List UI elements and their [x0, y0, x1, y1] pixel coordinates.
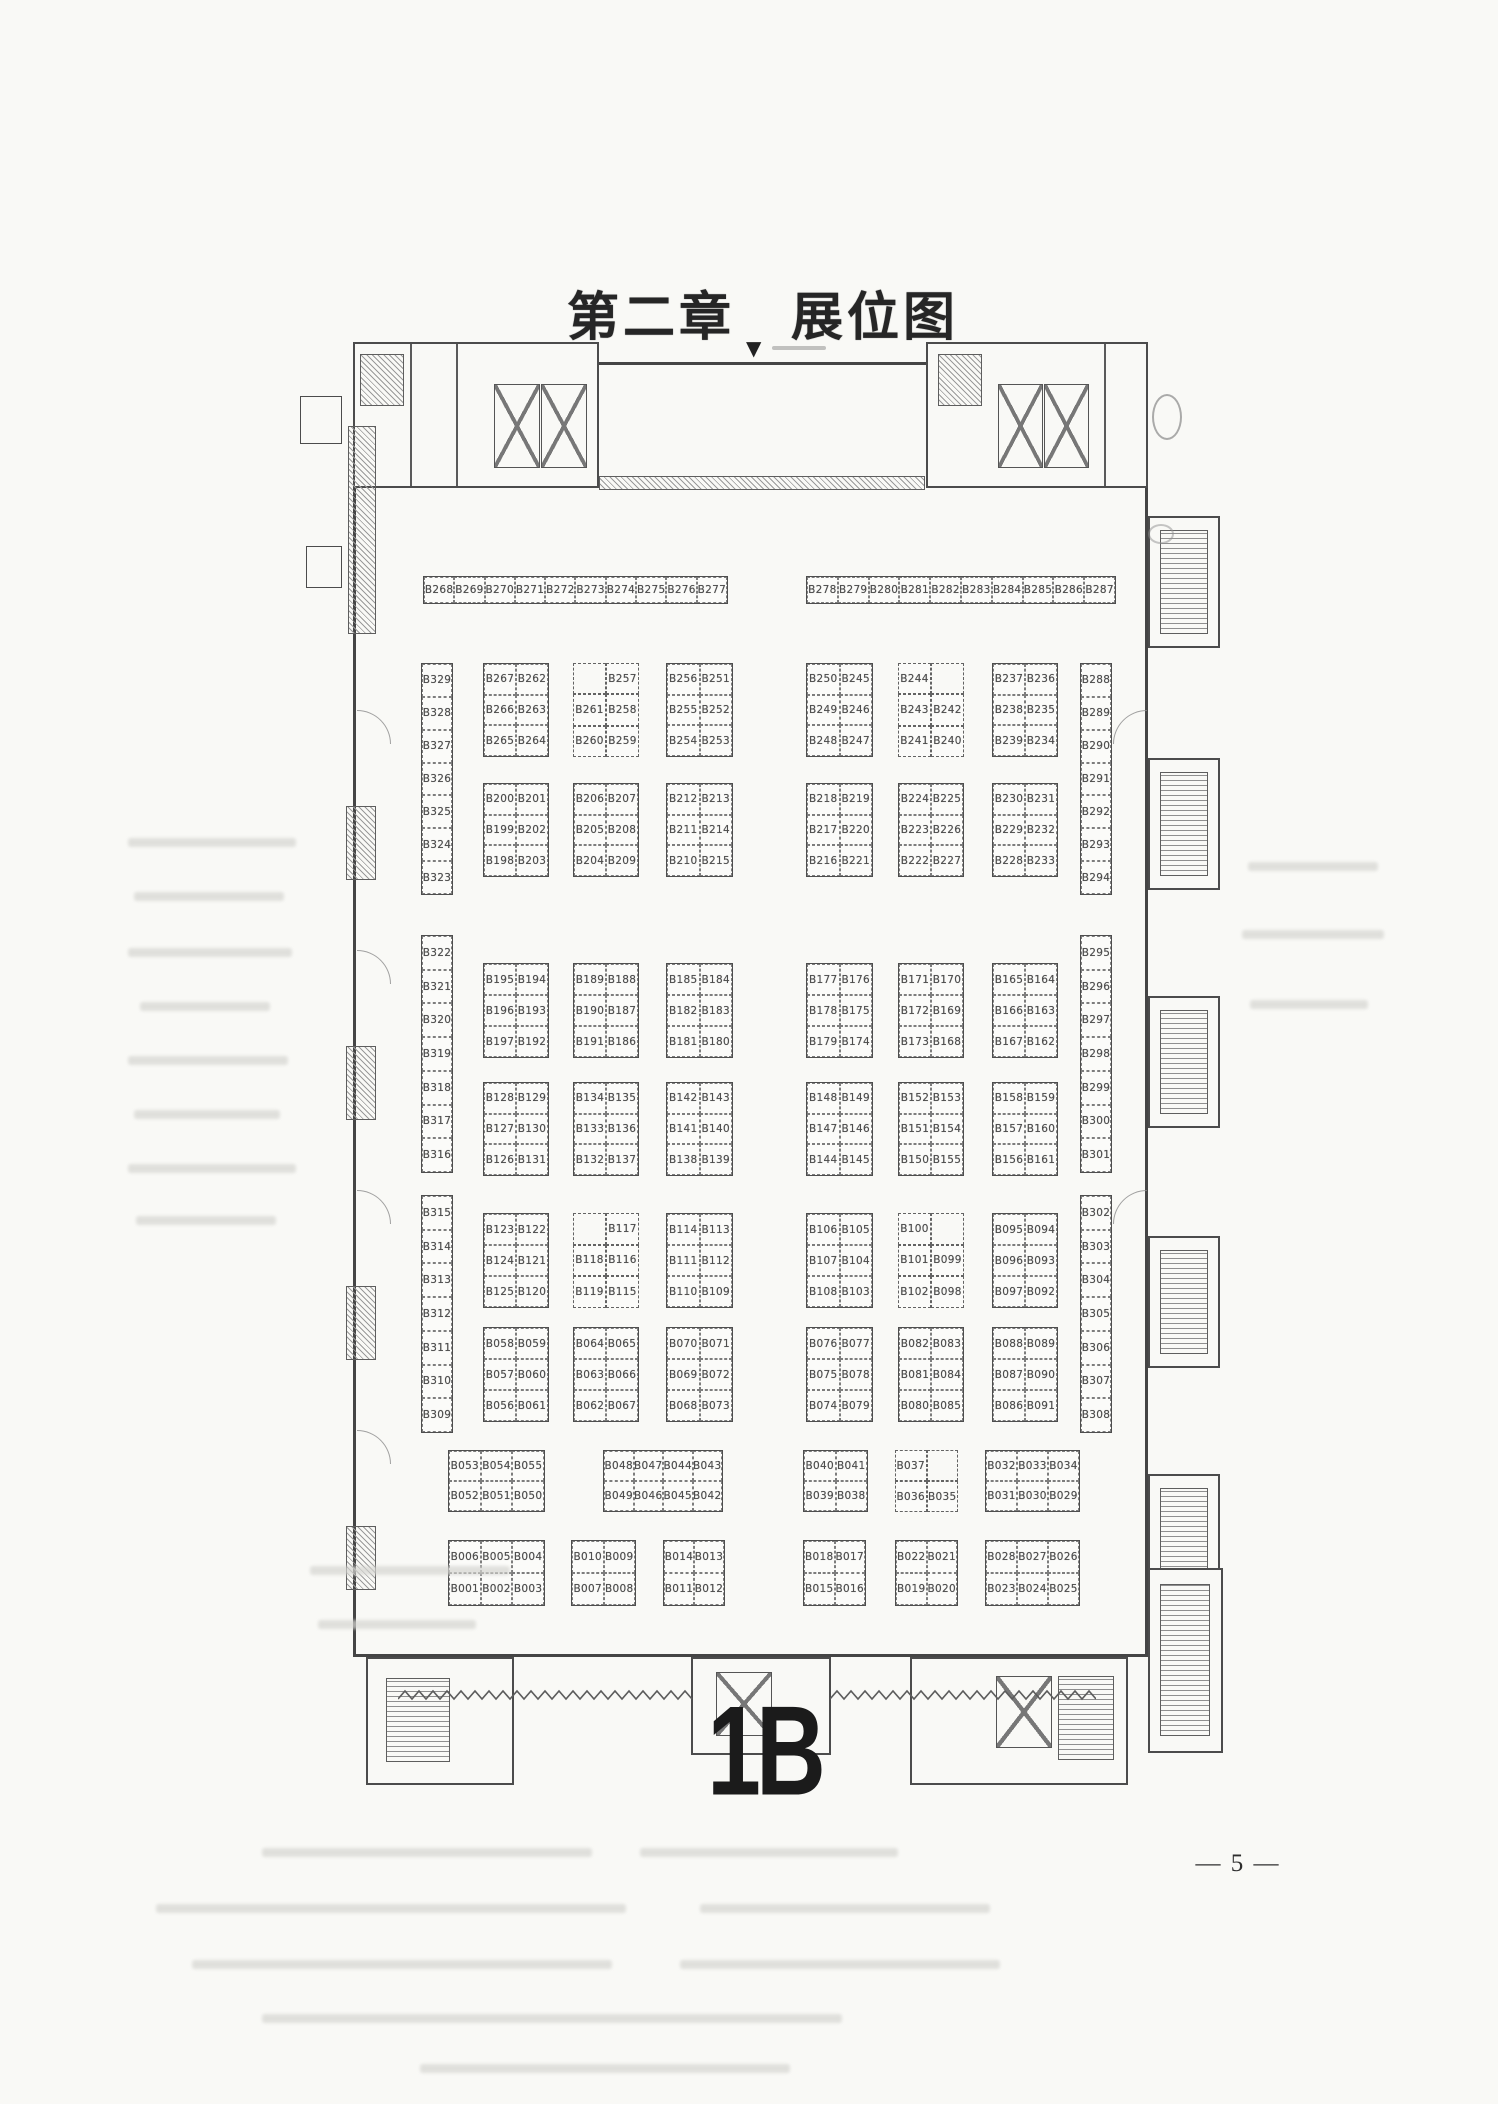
booth-B282: B282 [930, 577, 961, 603]
booth-B079: B079 [840, 1390, 873, 1421]
booth-B032: B032 [986, 1451, 1017, 1481]
booth-B011: B011 [664, 1573, 694, 1605]
booth-B303: B303 [1081, 1230, 1111, 1264]
booth-B190: B190 [574, 995, 606, 1026]
booth-B088: B088 [993, 1328, 1025, 1359]
booth-group-s2-l2: B206B207B205B208B204B209 [573, 783, 639, 877]
booth-B026: B026 [1048, 1541, 1079, 1573]
booth-group-s1-r2: B244B243B242B241B240 [898, 663, 964, 757]
bleed-through-line [262, 2014, 842, 2023]
booth-B324: B324 [422, 828, 452, 861]
booth-B099: B099 [931, 1245, 964, 1277]
booth-B131: B131 [516, 1144, 548, 1175]
booth-B326: B326 [422, 763, 452, 796]
booth-B260: B260 [573, 726, 606, 757]
booth-B084: B084 [931, 1359, 963, 1390]
booth-B235: B235 [1025, 695, 1057, 726]
elevator-icon [998, 384, 1043, 468]
booth-B263: B263 [516, 695, 548, 726]
booth-B185: B185 [667, 964, 700, 995]
booth-B129: B129 [516, 1083, 548, 1114]
booth-B272: B272 [545, 577, 575, 603]
booth-B007: B007 [572, 1573, 604, 1605]
booth-B191: B191 [574, 1026, 606, 1057]
booth-empty [573, 663, 606, 694]
booth-B296: B296 [1081, 970, 1111, 1004]
booth-B212: B212 [667, 784, 700, 815]
booth-B189: B189 [574, 964, 606, 995]
booth-B291: B291 [1081, 763, 1111, 796]
booth-B002: B002 [481, 1573, 513, 1605]
booth-B242: B242 [931, 694, 964, 725]
booth-B252: B252 [700, 695, 733, 726]
booth-group-s5-l3: B114B113B111B112B110B109 [666, 1213, 733, 1308]
booth-B034: B034 [1048, 1451, 1079, 1481]
booth-group-s1-l3: B256B251B255B252B254B253 [666, 663, 733, 757]
booth-group-s6-l1: B058B059B057B060B056B061 [483, 1327, 549, 1422]
booth-B280: B280 [869, 577, 900, 603]
booth-group-strip-right: B278B279B280B281B282B283B284B285B286B287 [806, 576, 1116, 604]
booth-B245: B245 [840, 664, 873, 695]
booth-B276: B276 [666, 577, 696, 603]
elevation-note [772, 346, 826, 350]
booth-B267: B267 [484, 664, 516, 695]
booth-B061: B061 [516, 1390, 548, 1421]
booth-B309: B309 [422, 1398, 452, 1432]
booth-B041: B041 [836, 1451, 868, 1481]
booth-B018: B018 [804, 1541, 835, 1573]
floor-plan: ▼ 1B B268B269B270B271B272B273B274B275B27… [298, 338, 1228, 1828]
booth-group-wall-right-c: B302B303B304B305B306B307B308 [1080, 1195, 1112, 1433]
booth-B294: B294 [1081, 861, 1111, 894]
booth-B090: B090 [1025, 1359, 1057, 1390]
booth-B028: B028 [986, 1541, 1017, 1573]
booth-B179: B179 [807, 1026, 840, 1057]
booth-B095: B095 [993, 1214, 1025, 1245]
booth-B058: B058 [484, 1328, 516, 1359]
booth-B112: B112 [700, 1245, 733, 1276]
booth-B249: B249 [807, 695, 840, 726]
booth-B143: B143 [700, 1083, 733, 1114]
elevator-icon [494, 384, 540, 468]
booth-B021: B021 [927, 1541, 958, 1573]
booth-B313: B313 [422, 1263, 452, 1297]
booth-B024: B024 [1017, 1573, 1048, 1605]
booth-B106: B106 [807, 1214, 840, 1245]
booth-B259: B259 [606, 726, 639, 757]
booth-B311: B311 [422, 1331, 452, 1365]
booth-B126: B126 [484, 1144, 516, 1175]
booth-B285: B285 [1023, 577, 1054, 603]
booth-B082: B082 [899, 1328, 931, 1359]
elevator-icon [1044, 384, 1089, 468]
booth-B221: B221 [840, 845, 873, 876]
booth-B301: B301 [1081, 1138, 1111, 1172]
booth-B253: B253 [700, 725, 733, 756]
booth-B302: B302 [1081, 1196, 1111, 1230]
booth-B068: B068 [667, 1390, 700, 1421]
booth-group-s8-g4: B018B017B015B016 [803, 1540, 866, 1606]
bleed-through-line [1248, 862, 1378, 871]
booth-B056: B056 [484, 1390, 516, 1421]
booth-group-s2-l3: B212B213B211B214B210B215 [666, 783, 733, 877]
elevator-icon [541, 384, 587, 468]
booth-group-s8-g6: B028B027B026B023B024B025 [985, 1540, 1080, 1606]
booth-group-s5-r3: B095B094B096B093B097B092 [992, 1213, 1058, 1308]
booth-B074: B074 [807, 1390, 840, 1421]
booth-B194: B194 [516, 964, 548, 995]
booth-B133: B133 [574, 1114, 606, 1145]
booth-B138: B138 [667, 1144, 700, 1175]
booth-B195: B195 [484, 964, 516, 995]
booth-B270: B270 [485, 577, 515, 603]
booth-B030: B030 [1017, 1481, 1048, 1511]
booth-B316: B316 [422, 1138, 452, 1172]
booth-B269: B269 [454, 577, 484, 603]
booth-B015: B015 [804, 1573, 835, 1605]
booth-B248: B248 [807, 725, 840, 756]
booth-B127: B127 [484, 1114, 516, 1145]
booth-B228: B228 [993, 845, 1025, 876]
booth-B151: B151 [899, 1114, 931, 1145]
booth-B091: B091 [1025, 1390, 1057, 1421]
booth-B033: B033 [1017, 1451, 1048, 1481]
booth-B141: B141 [667, 1114, 700, 1145]
zigzag-line [830, 1688, 1096, 1702]
booth-B225: B225 [931, 784, 963, 815]
booth-B055: B055 [512, 1451, 544, 1481]
booth-B121: B121 [516, 1245, 548, 1276]
booth-B067: B067 [606, 1390, 638, 1421]
stairwell-icon [346, 1526, 376, 1590]
booth-B295: B295 [1081, 936, 1111, 970]
booth-B017: B017 [835, 1541, 866, 1573]
booth-B156: B156 [993, 1144, 1025, 1175]
booth-B118: B118 [573, 1245, 606, 1277]
booth-group-s2-l1: B200B201B199B202B198B203 [483, 783, 549, 877]
booth-group-s3-r2: B171B170B172B169B173B168 [898, 963, 964, 1058]
booth-B286: B286 [1053, 577, 1084, 603]
booth-B094: B094 [1025, 1214, 1057, 1245]
booth-B080: B080 [899, 1390, 931, 1421]
booth-group-s4-r2: B152B153B151B154B150B155 [898, 1082, 964, 1176]
booth-B125: B125 [484, 1276, 516, 1307]
scan-mark [1148, 524, 1174, 544]
booth-B137: B137 [606, 1144, 638, 1175]
booth-B201: B201 [516, 784, 548, 815]
booth-B315: B315 [422, 1196, 452, 1230]
stairwell-icon [348, 426, 376, 634]
booth-B241: B241 [898, 726, 931, 757]
booth-B265: B265 [484, 725, 516, 756]
booth-group-s7-g1: B053B054B055B052B051B050 [448, 1450, 545, 1512]
booth-B042: B042 [693, 1481, 723, 1511]
annex-divider [456, 344, 458, 486]
booth-empty [931, 1213, 964, 1245]
booth-B128: B128 [484, 1083, 516, 1114]
bleed-through-line [156, 1904, 626, 1913]
booth-B008: B008 [604, 1573, 636, 1605]
booth-B051: B051 [481, 1481, 513, 1511]
booth-B205: B205 [574, 815, 606, 846]
booth-B284: B284 [992, 577, 1023, 603]
booth-group-s5-l1: B123B122B124B121B125B120 [483, 1213, 549, 1308]
booth-B239: B239 [993, 725, 1025, 756]
bleed-through-line [680, 1960, 1000, 1969]
booth-B098: B098 [931, 1276, 964, 1308]
booth-B172: B172 [899, 995, 931, 1026]
booth-B210: B210 [667, 845, 700, 876]
booth-empty [931, 663, 964, 694]
booth-group-s7-g3: B040B041B039B038 [803, 1450, 868, 1512]
booth-B153: B153 [931, 1083, 963, 1114]
booth-B167: B167 [993, 1026, 1025, 1057]
booth-B232: B232 [1025, 815, 1057, 846]
booth-B044: B044 [663, 1451, 693, 1481]
booth-B218: B218 [807, 784, 840, 815]
bleed-through-line [640, 1848, 898, 1857]
booth-B234: B234 [1025, 725, 1057, 756]
booth-B246: B246 [840, 695, 873, 726]
booth-B319: B319 [422, 1037, 452, 1071]
booth-B204: B204 [574, 845, 606, 876]
booth-B261: B261 [573, 694, 606, 725]
booth-B327: B327 [422, 730, 452, 763]
booth-B214: B214 [700, 815, 733, 846]
booth-B037: B037 [895, 1450, 927, 1481]
booth-B305: B305 [1081, 1297, 1111, 1331]
booth-B264: B264 [516, 725, 548, 756]
stairwell-icon [360, 354, 404, 406]
booth-B229: B229 [993, 815, 1025, 846]
booth-B144: B144 [807, 1144, 840, 1175]
booth-B035: B035 [927, 1481, 959, 1512]
booth-B277: B277 [697, 577, 727, 603]
booth-B135: B135 [606, 1083, 638, 1114]
booth-B268: B268 [424, 577, 454, 603]
stairwell-icon [1160, 772, 1208, 876]
booth-B001: B001 [449, 1573, 481, 1605]
booth-B174: B174 [840, 1026, 873, 1057]
booth-B023: B023 [986, 1573, 1017, 1605]
booth-B025: B025 [1048, 1573, 1079, 1605]
booth-B063: B063 [574, 1359, 606, 1390]
booth-group-s1-l2: B257B261B258B260B259 [573, 663, 639, 757]
booth-B003: B003 [512, 1573, 544, 1605]
booth-B273: B273 [575, 577, 605, 603]
booth-group-s1-r3: B237B236B238B235B239B234 [992, 663, 1058, 757]
annex-divider [1104, 344, 1106, 486]
bleed-through-line [128, 1056, 288, 1065]
booth-B119: B119 [573, 1276, 606, 1308]
booth-B297: B297 [1081, 1003, 1111, 1037]
booth-B081: B081 [899, 1359, 931, 1390]
booth-group-s3-r1: B177B176B178B175B179B174 [806, 963, 873, 1058]
booth-B274: B274 [606, 577, 636, 603]
booth-B139: B139 [700, 1144, 733, 1175]
booth-B196: B196 [484, 995, 516, 1026]
booth-group-s5-r1: B106B105B107B104B108B103 [806, 1213, 873, 1308]
booth-B116: B116 [606, 1245, 639, 1277]
booth-B325: B325 [422, 795, 452, 828]
booth-group-s7-g4: B037B036B035 [895, 1450, 958, 1512]
booth-B163: B163 [1025, 995, 1057, 1026]
booth-B165: B165 [993, 964, 1025, 995]
booth-group-s5-l2: B117B118B116B119B115 [573, 1213, 639, 1308]
booth-B180: B180 [700, 1026, 733, 1057]
booth-B161: B161 [1025, 1144, 1057, 1175]
booth-B123: B123 [484, 1214, 516, 1245]
booth-B289: B289 [1081, 697, 1111, 730]
booth-B100: B100 [898, 1213, 931, 1245]
booth-B200: B200 [484, 784, 516, 815]
booth-group-s4-l2: B134B135B133B136B132B137 [573, 1082, 639, 1176]
booth-B109: B109 [700, 1276, 733, 1307]
booth-B256: B256 [667, 664, 700, 695]
booth-group-wall-right-a: B288B289B290B291B292B293B294 [1080, 663, 1112, 895]
booth-B197: B197 [484, 1026, 516, 1057]
booth-B183: B183 [700, 995, 733, 1026]
booth-B105: B105 [840, 1214, 873, 1245]
booth-B115: B115 [606, 1276, 639, 1308]
booth-B238: B238 [993, 695, 1025, 726]
booth-B020: B020 [927, 1573, 958, 1605]
booth-B069: B069 [667, 1359, 700, 1390]
booth-B211: B211 [667, 815, 700, 846]
booth-B251: B251 [700, 664, 733, 695]
booth-B166: B166 [993, 995, 1025, 1026]
booth-B317: B317 [422, 1105, 452, 1139]
booth-B108: B108 [807, 1276, 840, 1307]
booth-B045: B045 [663, 1481, 693, 1511]
booth-B220: B220 [840, 815, 873, 846]
bleed-through-line [128, 948, 292, 957]
booth-B148: B148 [807, 1083, 840, 1114]
booth-B076: B076 [807, 1328, 840, 1359]
booth-B070: B070 [667, 1328, 700, 1359]
booth-B203: B203 [516, 845, 548, 876]
booth-group-s3-l1: B195B194B196B193B197B192 [483, 963, 549, 1058]
booth-B290: B290 [1081, 730, 1111, 763]
booth-B101: B101 [898, 1245, 931, 1277]
booth-B022: B022 [896, 1541, 927, 1573]
booth-B049: B049 [604, 1481, 634, 1511]
booth-B004: B004 [512, 1541, 544, 1573]
booth-B170: B170 [931, 964, 963, 995]
scanned-document-page: { "page": { "title": "第二章 展位图", "hall_la… [0, 0, 1498, 2104]
bleed-through-line [128, 1164, 296, 1173]
bleed-through-line [1250, 1000, 1368, 1009]
booth-B322: B322 [422, 936, 452, 970]
booth-B230: B230 [993, 784, 1025, 815]
left-outside-box [300, 396, 342, 444]
bleed-through-line [134, 1110, 280, 1119]
booth-B158: B158 [993, 1083, 1025, 1114]
booth-group-wall-right-b: B295B296B297B298B299B300B301 [1080, 935, 1112, 1173]
booth-group-s6-r1: B076B077B075B078B074B079 [806, 1327, 873, 1422]
booth-B142: B142 [667, 1083, 700, 1114]
stairwell-icon [346, 806, 376, 880]
booth-B038: B038 [836, 1481, 868, 1511]
booth-B122: B122 [516, 1214, 548, 1245]
booth-B258: B258 [606, 694, 639, 725]
booth-group-s6-r2: B082B083B081B084B080B085 [898, 1327, 964, 1422]
booth-B087: B087 [993, 1359, 1025, 1390]
booth-B323: B323 [422, 861, 452, 894]
booth-B278: B278 [807, 577, 838, 603]
bleed-through-line [136, 1216, 276, 1225]
booth-B057: B057 [484, 1359, 516, 1390]
booth-B178: B178 [807, 995, 840, 1026]
booth-group-s4-l3: B142B143B141B140B138B139 [666, 1082, 733, 1176]
booth-group-s4-r3: B158B159B157B160B156B161 [992, 1082, 1058, 1176]
booth-B224: B224 [899, 784, 931, 815]
booth-B173: B173 [899, 1026, 931, 1057]
zigzag-line [398, 1688, 698, 1702]
booth-B160: B160 [1025, 1114, 1057, 1145]
booth-group-s7-g2: B048B047B044B043B049B046B045B042 [603, 1450, 723, 1512]
booth-group-wall-left-b: B322B321B320B319B318B317B316 [421, 935, 453, 1173]
booth-group-s8-g3: B014B013B011B012 [663, 1540, 725, 1606]
booth-B113: B113 [700, 1214, 733, 1245]
booth-B103: B103 [840, 1276, 873, 1307]
booth-B310: B310 [422, 1365, 452, 1399]
booth-B124: B124 [484, 1245, 516, 1276]
booth-group-s2-r3: B230B231B229B232B228B233 [992, 783, 1058, 877]
booth-group-wall-left-c: B315B314B313B312B311B310B309 [421, 1195, 453, 1433]
booth-B292: B292 [1081, 795, 1111, 828]
booth-B029: B029 [1048, 1481, 1079, 1511]
booth-B052: B052 [449, 1481, 481, 1511]
booth-B159: B159 [1025, 1083, 1057, 1114]
left-outside-box [306, 546, 342, 588]
corridor-wall-hatch [599, 476, 925, 490]
booth-B062: B062 [574, 1390, 606, 1421]
booth-B293: B293 [1081, 828, 1111, 861]
booth-B040: B040 [804, 1451, 836, 1481]
booth-B060: B060 [516, 1359, 548, 1390]
hall-label: 1B [682, 1678, 846, 1825]
bleed-through-line [128, 838, 296, 847]
booth-group-s6-l3: B070B071B069B072B068B073 [666, 1327, 733, 1422]
booth-B155: B155 [931, 1144, 963, 1175]
booth-B031: B031 [986, 1481, 1017, 1511]
booth-B243: B243 [898, 694, 931, 725]
booth-B093: B093 [1025, 1245, 1057, 1276]
booth-B048: B048 [604, 1451, 634, 1481]
booth-B162: B162 [1025, 1026, 1057, 1057]
booth-B047: B047 [634, 1451, 664, 1481]
booth-B306: B306 [1081, 1331, 1111, 1365]
booth-B184: B184 [700, 964, 733, 995]
booth-B223: B223 [899, 815, 931, 846]
booth-B182: B182 [667, 995, 700, 1026]
booth-B298: B298 [1081, 1037, 1111, 1071]
booth-B072: B072 [700, 1359, 733, 1390]
booth-B213: B213 [700, 784, 733, 815]
booth-B111: B111 [667, 1245, 700, 1276]
booth-B039: B039 [804, 1481, 836, 1511]
booth-B075: B075 [807, 1359, 840, 1390]
booth-B157: B157 [993, 1114, 1025, 1145]
bleed-through-line [1242, 930, 1384, 939]
booth-B027: B027 [1017, 1541, 1048, 1573]
booth-empty [573, 1213, 606, 1245]
booth-B130: B130 [516, 1114, 548, 1145]
booth-group-s8-g5: B022B021B019B020 [895, 1540, 958, 1606]
booth-B266: B266 [484, 695, 516, 726]
booth-B104: B104 [840, 1245, 873, 1276]
